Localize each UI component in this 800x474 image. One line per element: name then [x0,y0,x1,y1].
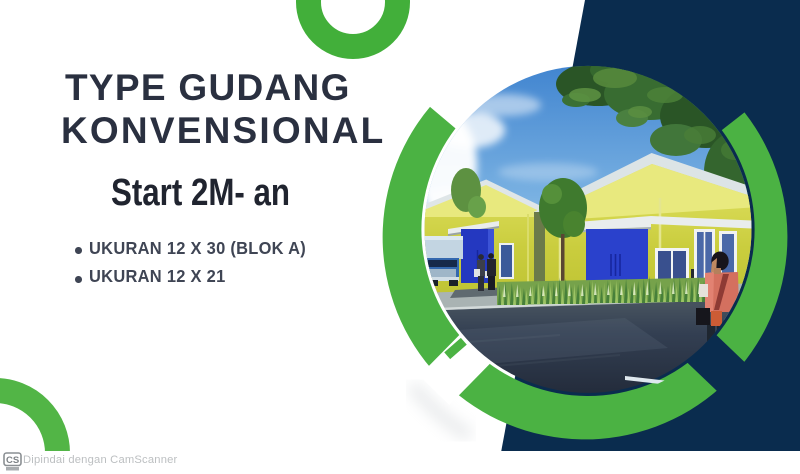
svg-text:CS: CS [6,455,19,466]
